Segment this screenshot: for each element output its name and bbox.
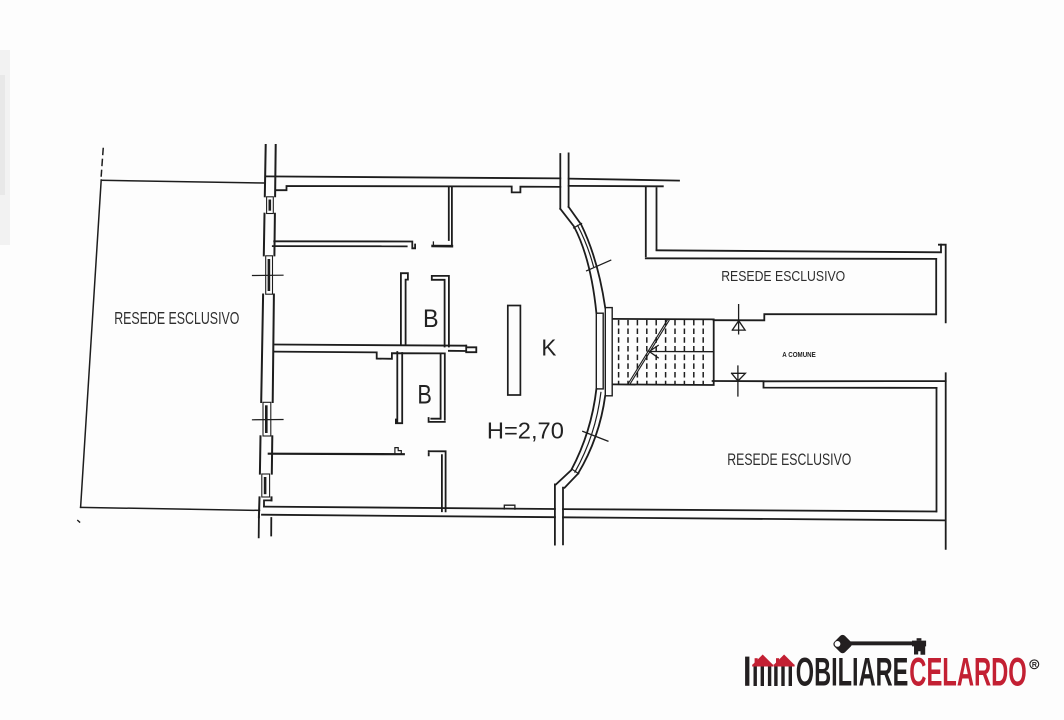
svg-text:B: B [423,306,439,333]
svg-text:CELARDO: CELARDO [909,651,1027,695]
svg-text:B: B [417,380,432,410]
svg-text:OBILIARE: OBILIARE [796,651,909,695]
svg-text:A COMUNE: A COMUNE [782,352,816,359]
svg-text:RESEDE ESCLUSIVO: RESEDE ESCLUSIVO [721,269,845,285]
svg-text:RESEDE ESCLUSIVO: RESEDE ESCLUSIVO [727,451,851,469]
svg-text:H=2,70: H=2,70 [487,417,564,443]
svg-text:K: K [541,335,556,361]
svg-text:R: R [1032,662,1037,669]
svg-text:RESEDE ESCLUSIVO: RESEDE ESCLUSIVO [114,308,239,328]
